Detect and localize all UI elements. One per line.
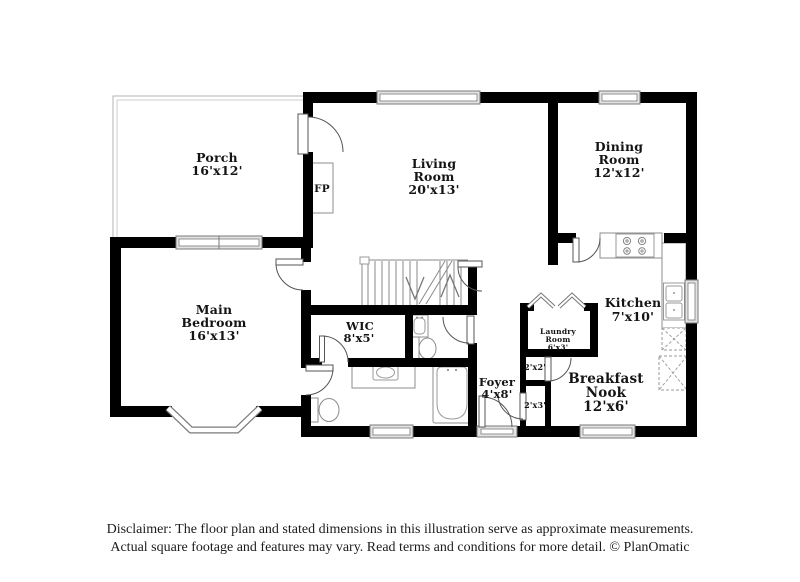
living-room-window	[377, 91, 480, 104]
label-fireplace: FP	[314, 183, 330, 195]
kitchen-sink-icon	[664, 283, 685, 320]
stair-direction-arrow-up	[441, 275, 459, 297]
hall-bath-toilet-icon	[411, 337, 436, 359]
kitchen-door	[573, 238, 600, 262]
breakfast-nook-window	[580, 425, 635, 438]
room-label-porch-dims: 16'x12'	[191, 163, 242, 178]
stair-direction-arrow-down	[406, 277, 424, 299]
label-closet-2x2: 2'x2'	[524, 362, 546, 372]
main-bath-toilet-icon	[310, 398, 339, 422]
disclaimer-line-2: Actual square footage and features may v…	[110, 540, 689, 555]
dining-room-window	[599, 91, 640, 104]
hall-bath-door	[443, 316, 474, 344]
room-label-main-bedroom-dims: 16'x13'	[188, 328, 239, 343]
front-door-threshold	[477, 426, 517, 437]
closet-2x2-door	[545, 357, 571, 381]
label-closet-2x3: 2'x3'	[524, 400, 546, 410]
bathtub-icon	[433, 363, 471, 423]
laundry-bifold-doors	[528, 295, 585, 307]
disclaimer-line-1: Disclaimer: The floor plan and stated di…	[107, 522, 694, 537]
room-label-kitchen: Kitchen	[605, 295, 662, 310]
dishwasher-icon	[662, 328, 686, 350]
stove-icon	[600, 233, 662, 258]
room-label-laundry-dims: 6'x3'	[548, 343, 569, 352]
staircase	[360, 257, 468, 305]
porch-door	[298, 114, 343, 154]
bedroom-door	[276, 259, 303, 290]
room-label-foyer-dims: 4'x8'	[482, 387, 513, 401]
bathroom-window	[370, 425, 413, 438]
stair-newel	[360, 257, 369, 264]
room-label-living-room-dims: 20'x13'	[408, 182, 459, 197]
bedroom-bath-door	[306, 365, 333, 395]
floor-plan-canvas: Porch 16'x12' Living Room 20'x13' Dining…	[0, 0, 800, 582]
room-label-dining-room-dims: 12'x12'	[593, 165, 644, 180]
kitchen-window	[685, 280, 698, 323]
room-label-breakfast-nook-dims: 12'x6'	[583, 399, 629, 415]
disclaimer: Disclaimer: The floor plan and stated di…	[107, 522, 694, 555]
bay-window	[168, 408, 260, 430]
room-label-kitchen-dims: 7'x10'	[612, 309, 654, 324]
bedroom-double-window	[176, 236, 262, 249]
room-label-wic-dims: 8'x5'	[344, 331, 375, 345]
cabinet-icon	[659, 356, 687, 390]
hall-bath-sink-icon	[411, 315, 428, 337]
room-labels: Porch 16'x12' Living Room 20'x13' Dining…	[181, 139, 661, 415]
